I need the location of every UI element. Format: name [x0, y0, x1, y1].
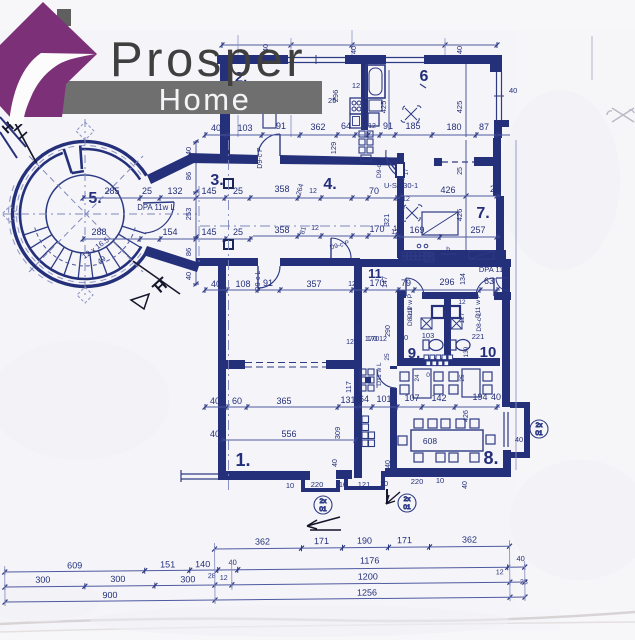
svg-text:12: 12	[220, 575, 228, 582]
svg-text:63: 63	[484, 276, 494, 286]
svg-text:362: 362	[310, 122, 325, 132]
svg-text:145: 145	[201, 227, 216, 237]
svg-text:257: 257	[470, 225, 485, 235]
svg-text:190: 190	[357, 536, 372, 546]
svg-text:285: 285	[104, 186, 119, 196]
svg-text:300: 300	[180, 574, 195, 584]
svg-text:185: 185	[405, 121, 420, 131]
svg-text:296: 296	[439, 277, 454, 287]
svg-text:9.: 9.	[408, 345, 421, 362]
svg-text:357: 357	[306, 279, 321, 289]
svg-text:171: 171	[314, 536, 329, 546]
svg-text:10: 10	[480, 344, 497, 361]
svg-text:40: 40	[211, 123, 221, 133]
svg-text:91: 91	[276, 121, 286, 131]
svg-text:10: 10	[436, 476, 444, 485]
svg-text:64: 64	[341, 121, 351, 131]
svg-text:40: 40	[385, 460, 392, 468]
svg-text:12: 12	[496, 569, 504, 576]
svg-text:11: 11	[368, 266, 382, 281]
svg-text:12: 12	[352, 81, 360, 90]
svg-text:358: 358	[274, 225, 289, 235]
svg-text:8.: 8.	[483, 448, 498, 468]
svg-text:D8-c P: D8-c P	[407, 306, 414, 326]
svg-text:10: 10	[380, 479, 388, 488]
svg-text:40: 40	[228, 558, 236, 567]
svg-text:01: 01	[319, 506, 327, 513]
svg-text:40: 40	[332, 459, 339, 467]
svg-text:300: 300	[35, 575, 50, 585]
svg-text:2x: 2x	[536, 422, 544, 429]
svg-text:117: 117	[344, 381, 353, 393]
svg-text:7.: 7.	[476, 205, 489, 222]
svg-text:DPA 11: DPA 11	[479, 265, 503, 274]
svg-text:79: 79	[401, 278, 411, 288]
svg-text:Home: Home	[159, 82, 252, 117]
svg-text:24: 24	[414, 374, 421, 382]
svg-text:40: 40	[211, 279, 221, 289]
svg-text:131: 131	[340, 395, 355, 405]
svg-text:300: 300	[110, 574, 125, 584]
svg-text:3.: 3.	[210, 172, 223, 189]
svg-text:140: 140	[195, 559, 210, 569]
svg-text:40: 40	[515, 435, 523, 444]
svg-text:40: 40	[349, 46, 358, 54]
svg-text:01: 01	[535, 430, 543, 437]
svg-text:180: 180	[446, 122, 461, 132]
svg-text:365: 365	[276, 396, 291, 406]
svg-text:426: 426	[440, 185, 455, 195]
svg-text:134: 134	[460, 273, 467, 285]
svg-text:40: 40	[462, 481, 469, 489]
svg-text:01: 01	[403, 504, 411, 511]
svg-text:86: 86	[184, 248, 193, 256]
svg-text:426: 426	[455, 209, 464, 222]
svg-text:290: 290	[385, 325, 392, 337]
svg-text:132: 132	[167, 186, 182, 196]
svg-text:17: 17	[404, 168, 410, 175]
svg-text:40: 40	[184, 272, 193, 280]
svg-text:139: 139	[463, 346, 470, 357]
svg-text:91: 91	[383, 121, 393, 131]
svg-text:25: 25	[233, 227, 243, 237]
svg-text:b: b	[446, 246, 450, 253]
svg-text:426: 426	[463, 410, 470, 422]
svg-text:362: 362	[255, 537, 270, 547]
svg-text:221: 221	[472, 332, 485, 341]
svg-text:107: 107	[404, 393, 419, 403]
svg-text:25: 25	[459, 374, 466, 382]
svg-text:0: 0	[426, 372, 430, 379]
svg-text:309: 309	[333, 427, 342, 440]
svg-text:25: 25	[142, 186, 152, 196]
svg-text:1176: 1176	[360, 555, 379, 565]
svg-text:90: 90	[400, 333, 408, 342]
svg-text:556: 556	[281, 429, 296, 439]
svg-text:64: 64	[359, 394, 369, 404]
svg-text:10: 10	[286, 481, 294, 490]
svg-text:220: 220	[311, 480, 324, 489]
svg-text:1200: 1200	[358, 571, 378, 581]
svg-text:40: 40	[509, 86, 517, 95]
svg-text:194: 194	[472, 392, 487, 402]
svg-text:362: 362	[462, 535, 477, 545]
svg-text:12: 12	[346, 339, 354, 346]
svg-text:12: 12	[348, 281, 356, 288]
svg-text:147: 147	[382, 276, 389, 288]
svg-text:Prosper: Prosper	[110, 33, 306, 87]
svg-text:103: 103	[237, 123, 252, 133]
svg-text:101: 101	[376, 394, 391, 404]
svg-text:40: 40	[210, 429, 220, 439]
svg-text:424: 424	[354, 311, 363, 324]
svg-text:12: 12	[309, 188, 317, 195]
svg-text:425: 425	[379, 101, 388, 114]
svg-text:12: 12	[311, 225, 319, 232]
svg-text:60: 60	[232, 396, 242, 406]
svg-text:220: 220	[411, 477, 424, 486]
svg-text:12: 12	[393, 226, 401, 233]
svg-text:288: 288	[91, 227, 106, 237]
svg-text:4.: 4.	[323, 176, 336, 193]
svg-text:25: 25	[384, 353, 391, 361]
svg-text:25: 25	[457, 167, 464, 175]
svg-text:121: 121	[358, 480, 371, 489]
svg-text:D8-c L: D8-c L	[476, 312, 483, 332]
svg-text:40: 40	[455, 46, 464, 54]
svg-text:26: 26	[490, 184, 500, 194]
svg-text:87: 87	[479, 122, 489, 132]
svg-text:358: 358	[274, 184, 289, 194]
svg-text:103: 103	[422, 331, 435, 340]
svg-text:10: 10	[339, 480, 347, 489]
svg-text:2x: 2x	[404, 496, 412, 503]
svg-text:6: 6	[420, 68, 429, 85]
svg-text:25: 25	[328, 96, 336, 105]
svg-text:12: 12	[402, 196, 410, 203]
svg-text:U-Sp 30-1: U-Sp 30-1	[384, 181, 418, 190]
svg-text:28: 28	[520, 579, 528, 586]
svg-text:608: 608	[423, 436, 437, 446]
svg-text:171: 171	[397, 535, 412, 545]
svg-text:129: 129	[329, 142, 338, 155]
svg-text:127: 127	[459, 312, 466, 323]
svg-text:91: 91	[263, 278, 273, 288]
svg-text:1256: 1256	[357, 587, 377, 597]
svg-text:D9-c P: D9-c P	[257, 147, 264, 169]
svg-text:70: 70	[369, 186, 379, 196]
svg-text:1.: 1.	[235, 450, 250, 470]
svg-text:25: 25	[233, 186, 243, 196]
svg-text:40: 40	[516, 554, 524, 563]
svg-text:86: 86	[184, 172, 193, 180]
svg-text:D9-c P: D9-c P	[376, 158, 383, 178]
svg-text:D11 w L: D11 w L	[376, 362, 383, 386]
svg-text:900: 900	[102, 590, 117, 600]
svg-text:253: 253	[184, 208, 193, 221]
svg-text:170: 170	[369, 224, 384, 234]
svg-text:12: 12	[458, 299, 466, 306]
svg-text:170: 170	[365, 334, 378, 343]
svg-text:DPA 11w L: DPA 11w L	[137, 203, 175, 212]
svg-text:2x: 2x	[320, 498, 328, 505]
svg-text:609: 609	[67, 560, 82, 570]
svg-text:12: 12	[368, 123, 376, 130]
svg-text:142: 142	[431, 393, 446, 403]
svg-text:40: 40	[491, 392, 501, 402]
svg-text:40: 40	[210, 396, 220, 406]
svg-text:151: 151	[160, 559, 175, 569]
svg-text:425: 425	[455, 101, 464, 114]
svg-text:108: 108	[235, 279, 250, 289]
svg-text:169: 169	[409, 225, 424, 235]
svg-text:154: 154	[162, 227, 177, 237]
